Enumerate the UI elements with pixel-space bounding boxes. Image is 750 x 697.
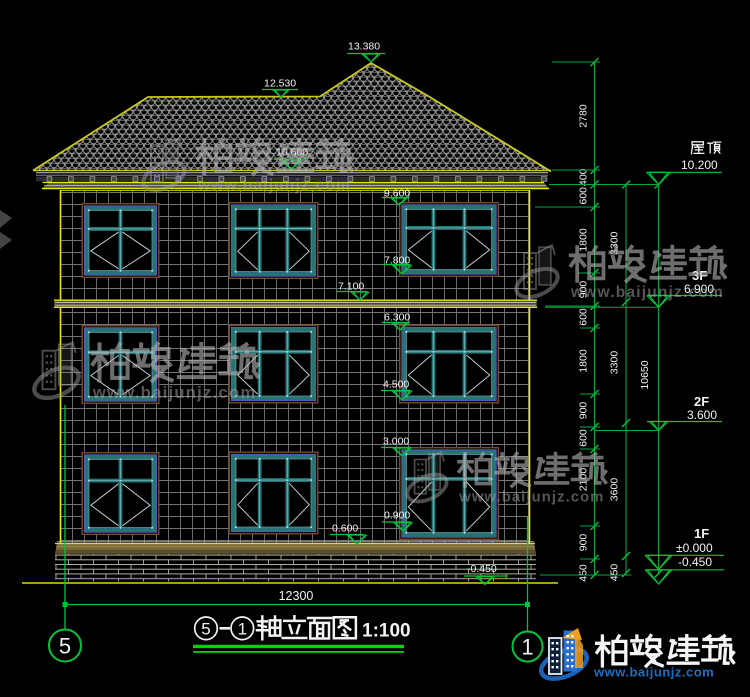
svg-text:900: 900	[578, 402, 590, 420]
svg-text:13.380: 13.380	[348, 41, 380, 53]
svg-text:3600: 3600	[609, 478, 621, 502]
svg-text:3.600: 3.600	[687, 408, 717, 422]
svg-text:900: 900	[578, 534, 590, 552]
svg-text:www.baijunjz.com: www.baijunjz.com	[92, 383, 257, 402]
svg-text:12.530: 12.530	[264, 78, 296, 90]
svg-text:1F: 1F	[694, 526, 709, 541]
svg-text:4.500: 4.500	[383, 379, 409, 391]
svg-text:600: 600	[578, 429, 590, 447]
svg-text:1:100: 1:100	[362, 621, 411, 642]
svg-text:5: 5	[201, 620, 210, 639]
svg-text:1: 1	[238, 620, 247, 639]
svg-text:3.000: 3.000	[383, 436, 409, 448]
svg-text:1800: 1800	[578, 228, 590, 252]
svg-text:450: 450	[609, 564, 621, 582]
svg-text:0.900: 0.900	[384, 510, 410, 522]
svg-text:-0.450: -0.450	[678, 555, 712, 569]
svg-text:450: 450	[578, 564, 590, 582]
svg-text:10.200: 10.200	[681, 158, 718, 172]
svg-text:12300: 12300	[279, 589, 314, 603]
svg-text:www.baijunjz.com: www.baijunjz.com	[197, 177, 351, 194]
svg-text:-0.450: -0.450	[467, 563, 497, 575]
svg-text:600: 600	[578, 187, 590, 205]
svg-text:±0.000: ±0.000	[676, 541, 713, 555]
svg-text:2F: 2F	[694, 394, 709, 409]
svg-text:0.600: 0.600	[332, 523, 358, 535]
svg-text:6.300: 6.300	[384, 312, 410, 324]
svg-text:www.baijunjz.com: www.baijunjz.com	[458, 489, 604, 505]
svg-text:600: 600	[578, 308, 590, 326]
svg-text:3300: 3300	[609, 351, 621, 375]
svg-text:www.baijunjz.com: www.baijunjz.com	[570, 284, 724, 301]
svg-text:1800: 1800	[578, 349, 590, 373]
svg-text:7.100: 7.100	[338, 281, 364, 293]
svg-text:2780: 2780	[578, 104, 590, 128]
svg-text:5: 5	[59, 634, 71, 659]
svg-text:400: 400	[578, 168, 590, 186]
svg-text:10650: 10650	[639, 360, 651, 389]
svg-text:www.baijunjz.com: www.baijunjz.com	[593, 665, 714, 680]
svg-text:1: 1	[521, 635, 533, 660]
